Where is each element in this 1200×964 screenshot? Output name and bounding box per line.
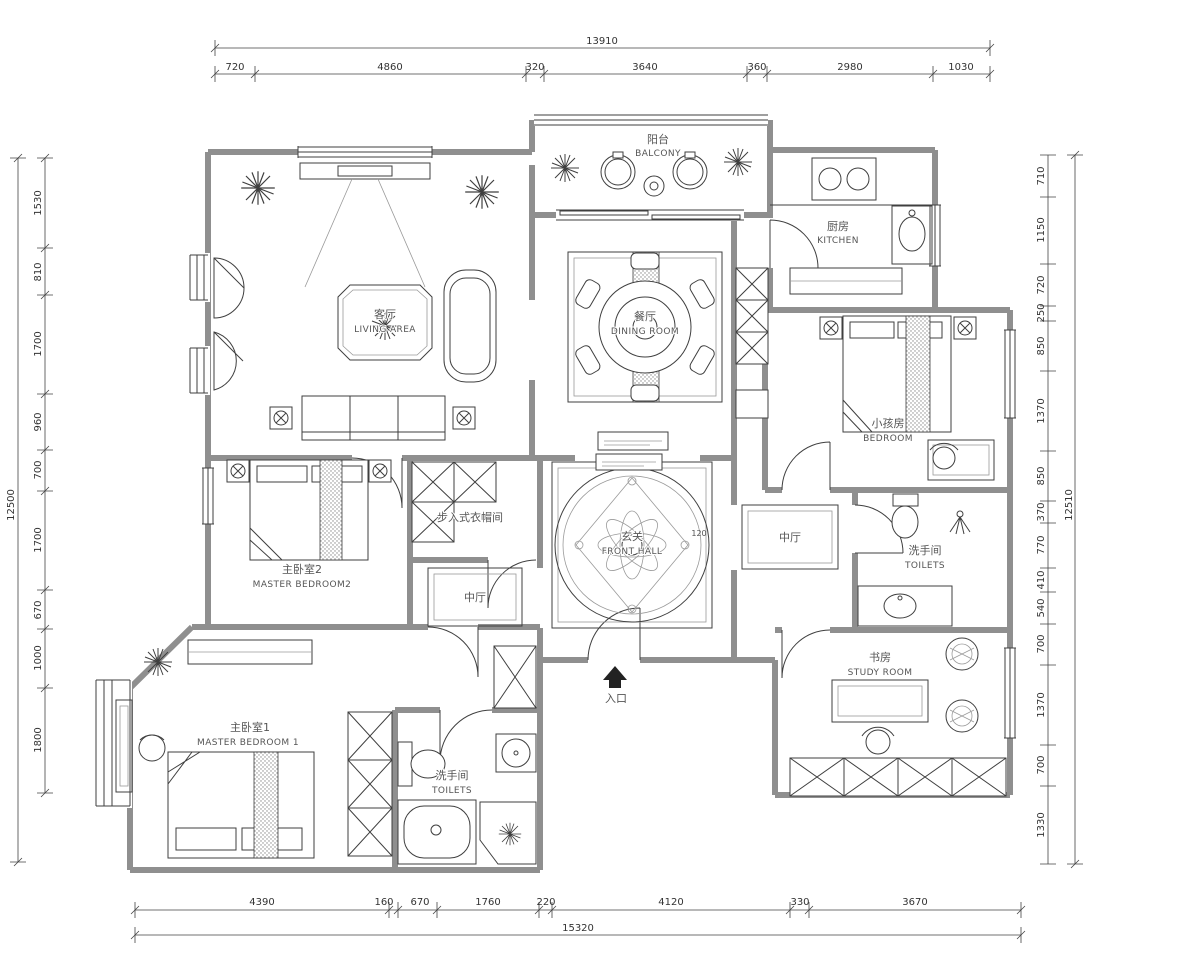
dim-left-6: 670	[33, 600, 44, 619]
dim-bottom-0: 4390	[249, 897, 274, 908]
riser-shafts	[736, 268, 768, 418]
dimension-left: 12500 1530 810 1700 960 700 1700 670 100…	[6, 154, 53, 866]
dim-bottom-5: 4120	[658, 897, 683, 908]
floor-plan-canvas: 13910 720 4860 320 3640 360 2980 1030 15…	[0, 0, 1200, 960]
mid-hall-right-label: 中厅	[779, 531, 801, 544]
balcony-label-zh: 阳台	[647, 132, 669, 146]
dim-right-12: 1370	[1036, 692, 1047, 717]
dim-right-5: 1370	[1036, 398, 1047, 423]
bay-window-master1	[94, 678, 132, 808]
window-child-right	[1004, 330, 1016, 418]
dim-bottom-7: 3670	[902, 897, 927, 908]
dimension-bottom: 15320 4390 160 670 1760 220 4120 330 367…	[131, 897, 1025, 943]
mid-hall-left-label: 中厅	[464, 591, 486, 604]
dining-chair	[688, 344, 716, 376]
dim-right-8: 770	[1036, 535, 1047, 554]
dim-bottom-3: 1760	[475, 897, 500, 908]
dim-right-3: 250	[1036, 303, 1047, 322]
door-study	[782, 630, 830, 678]
entrance-arrow-icon	[603, 666, 627, 688]
entrance-label: 入口	[605, 692, 627, 705]
balcony-label-en: BALCONY	[635, 149, 681, 159]
dim-bottom-4: 220	[536, 897, 555, 908]
living-room: 客厅 LIVING AREA	[214, 163, 499, 440]
dim-left-5: 1700	[33, 527, 44, 552]
dim-right-total: 12510	[1064, 489, 1075, 521]
plant-icon	[241, 171, 275, 205]
side-table-icon	[453, 407, 475, 429]
dim-top-total: 13910	[586, 36, 618, 47]
dimension-top: 13910 720 4860 320 3640 360 2980 1030	[211, 36, 994, 82]
plant-icon	[465, 175, 499, 209]
window-master2-left	[202, 468, 214, 524]
master-bedroom2-label-en: MASTER BEDROOM2	[253, 580, 352, 590]
dim-left-7: 1000	[33, 645, 44, 670]
dim-left-4: 700	[33, 460, 44, 479]
dim-bottom-total: 15320	[562, 923, 594, 934]
dim-top-4: 360	[747, 62, 766, 73]
bookshelf	[790, 758, 1006, 796]
kitchen-label-zh: 厨房	[827, 220, 849, 233]
door-kitchen	[770, 220, 818, 268]
dim-top-3: 3640	[632, 62, 657, 73]
dining-label-en: DINING ROOM	[611, 327, 679, 337]
door-toilets-bottom	[440, 710, 492, 762]
child-bedroom-label-en: BEDROOM	[863, 434, 913, 444]
plant-icon	[551, 154, 579, 182]
dim-left-8: 1800	[33, 727, 44, 752]
dim-right-4: 850	[1036, 336, 1047, 355]
dim-top-5: 2980	[837, 62, 862, 73]
dining-label-zh: 餐厅	[634, 309, 656, 323]
dim-top-1: 4860	[377, 62, 402, 73]
study-label-en: STUDY ROOM	[848, 668, 913, 678]
dim-left-total: 12500	[6, 489, 17, 521]
master-bedroom2: 主卧室2 MASTER BEDROOM2	[227, 460, 391, 590]
dim-top-6: 1030	[948, 62, 973, 73]
master-bedroom2-label-zh: 主卧室2	[282, 562, 322, 576]
door-walkin-closet	[488, 560, 536, 608]
dim-right-13: 700	[1036, 755, 1047, 774]
entrance: 入口	[603, 666, 627, 705]
dining-room: 餐厅 DINING ROOM	[568, 252, 768, 418]
toilets-bottom-label-en: TOILETS	[431, 786, 472, 796]
side-table-icon	[270, 407, 292, 429]
dining-chair	[688, 278, 716, 310]
toilets-right: 洗手间 TOILETS	[858, 494, 970, 626]
kitchen-label-en: KITCHEN	[817, 236, 859, 246]
living-label-zh: 客厅	[374, 307, 396, 321]
toilets-bottom-label-zh: 洗手间	[436, 768, 469, 782]
door-master-bedroom1	[428, 627, 478, 677]
dim-right-14: 1330	[1036, 812, 1047, 837]
door-child-bedroom	[782, 442, 830, 490]
window-kitchen-right	[929, 205, 941, 266]
window-balcony-rail	[534, 114, 768, 126]
door-entrance	[588, 608, 640, 660]
dim-right-6: 850	[1036, 466, 1047, 485]
dining-chair	[574, 278, 602, 310]
child-bedroom-label-zh: 小孩房	[872, 417, 905, 430]
dim-left-0: 1530	[33, 190, 44, 215]
window-balcony-slider	[556, 209, 744, 221]
nightstand-icon	[954, 317, 976, 339]
plant-icon	[144, 648, 172, 676]
dining-chair	[631, 253, 659, 269]
dim-right-9: 410	[1036, 570, 1047, 589]
dining-chair	[574, 344, 602, 376]
dim-right-11: 700	[1036, 634, 1047, 653]
study-room: 书房 STUDY ROOM	[790, 638, 1006, 796]
balcony: 阳台 BALCONY	[551, 132, 752, 196]
dim-right-2: 720	[1036, 275, 1047, 294]
study-label-zh: 书房	[869, 651, 891, 664]
dim-right-7: 370	[1036, 502, 1047, 521]
mid-hall-left: 中厅	[428, 568, 522, 626]
dim-right-1: 1150	[1036, 217, 1047, 242]
walkin-closet: 步入式衣帽间	[412, 462, 503, 542]
toilets-bottom: 洗手间 TOILETS	[398, 646, 536, 864]
master-bedroom1: 主卧室1 MASTER BEDROOM 1	[116, 640, 392, 858]
front-hall-dim: 120	[691, 529, 706, 538]
child-bedroom: 小孩房 BEDROOM	[820, 316, 994, 480]
dim-left-1: 810	[33, 262, 44, 281]
front-hall-label-zh: 玄关	[621, 529, 643, 543]
bay-window-living-a	[188, 253, 210, 302]
dim-right-0: 710	[1036, 166, 1047, 185]
window-study-right	[1004, 648, 1016, 738]
plant-icon	[499, 823, 521, 845]
front-hall-label-en: FRONT HALL	[602, 547, 663, 557]
toilets-right-label-zh: 洗手间	[909, 543, 942, 557]
nightstand-icon	[820, 317, 842, 339]
dim-left-2: 1700	[33, 331, 44, 356]
dim-bottom-1: 160	[374, 897, 393, 908]
master-bedroom1-label-en: MASTER BEDROOM 1	[197, 738, 299, 748]
ceiling-note-boxes	[596, 432, 668, 470]
dining-chair	[631, 385, 659, 401]
wardrobe	[348, 712, 392, 856]
dim-bottom-6: 330	[790, 897, 809, 908]
mid-hall-right: 中厅	[742, 505, 838, 569]
floor-plan-page: 13910 720 4860 320 3640 360 2980 1030 15…	[0, 0, 1200, 960]
nightstand-icon	[369, 460, 391, 482]
walkin-closet-label: 步入式衣帽间	[437, 510, 503, 524]
window-living-top	[298, 146, 432, 158]
toilets-right-label-en: TOILETS	[904, 561, 945, 571]
dim-right-10: 540	[1036, 598, 1047, 617]
master-bedroom1-label-zh: 主卧室1	[230, 720, 270, 734]
plant-icon	[724, 148, 752, 176]
dimension-right: 12510 710 1150 720 250 850 1370 850 370 …	[1036, 151, 1083, 868]
dim-left-3: 960	[33, 412, 44, 431]
dim-top-0: 720	[225, 62, 244, 73]
front-hall: 玄关 FRONT HALL 120	[552, 432, 712, 628]
dim-top-2: 320	[525, 62, 544, 73]
nightstand-icon	[227, 460, 249, 482]
dim-bottom-2: 670	[410, 897, 429, 908]
living-label-en: LIVING AREA	[354, 325, 416, 335]
bay-window-living-b	[188, 346, 210, 395]
